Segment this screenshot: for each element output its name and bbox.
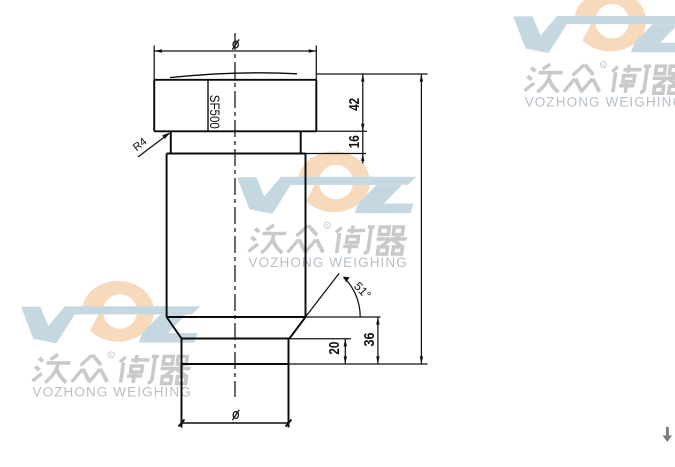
svg-text:51°: 51°: [351, 279, 374, 302]
svg-text:16: 16: [346, 135, 363, 148]
svg-text:36: 36: [361, 333, 378, 347]
svg-text:SF500: SF500: [207, 95, 223, 129]
svg-text:20: 20: [326, 342, 343, 355]
svg-text:42: 42: [346, 98, 363, 111]
